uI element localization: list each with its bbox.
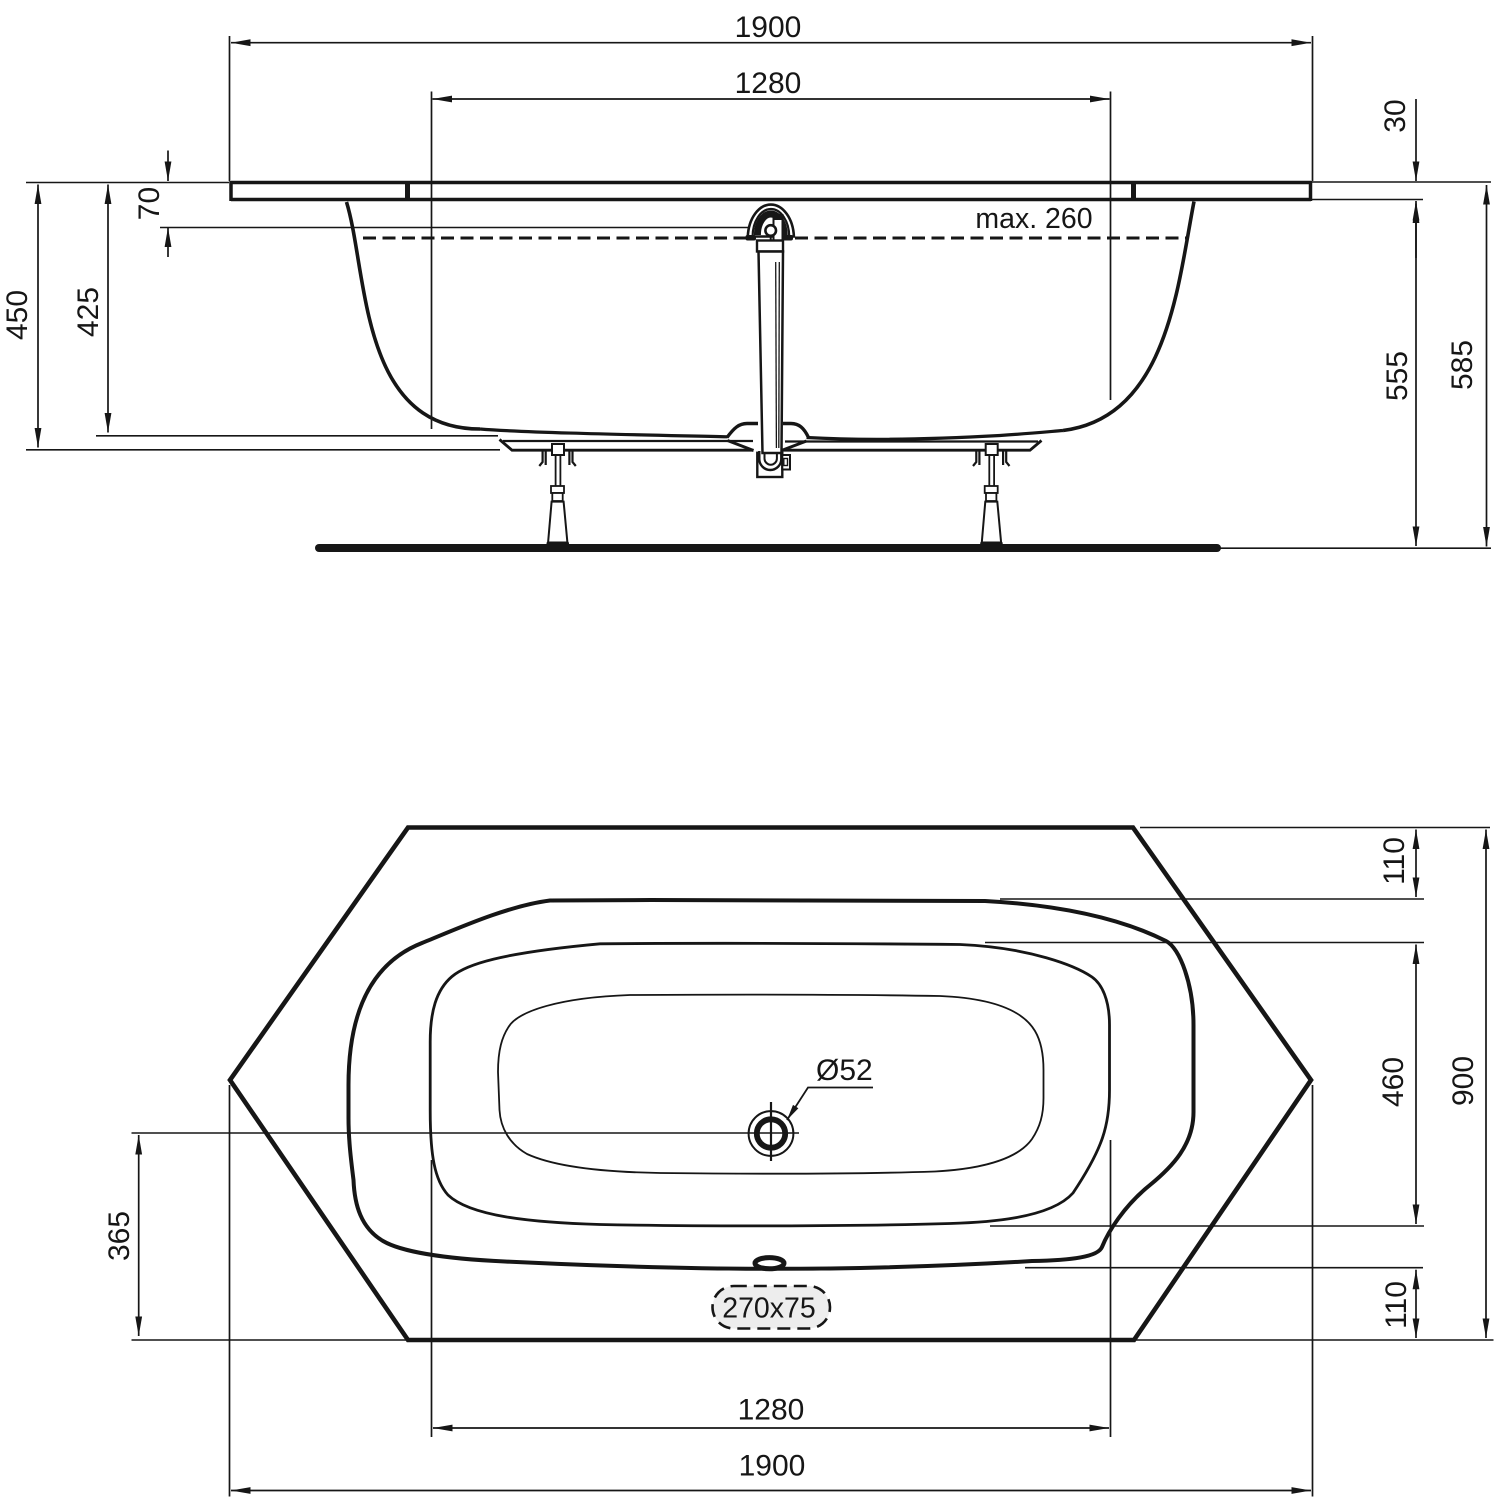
svg-text:70: 70 (133, 187, 166, 220)
svg-text:30: 30 (1379, 99, 1412, 132)
svg-text:450: 450 (1, 290, 34, 340)
svg-text:585: 585 (1446, 340, 1479, 390)
svg-text:1280: 1280 (738, 1394, 805, 1427)
svg-text:Ø52: Ø52 (816, 1054, 873, 1087)
svg-text:max. 260: max. 260 (975, 203, 1092, 235)
svg-text:1280: 1280 (735, 67, 802, 100)
svg-text:110: 110 (1380, 1281, 1413, 1329)
svg-text:425: 425 (72, 287, 105, 337)
svg-text:1900: 1900 (739, 1450, 806, 1483)
svg-text:900: 900 (1447, 1056, 1480, 1106)
svg-text:110: 110 (1378, 837, 1411, 885)
svg-text:555: 555 (1381, 351, 1414, 401)
svg-text:270x75: 270x75 (722, 1293, 816, 1325)
svg-text:365: 365 (103, 1211, 136, 1261)
svg-text:460: 460 (1377, 1057, 1410, 1107)
svg-text:1900: 1900 (735, 11, 802, 44)
